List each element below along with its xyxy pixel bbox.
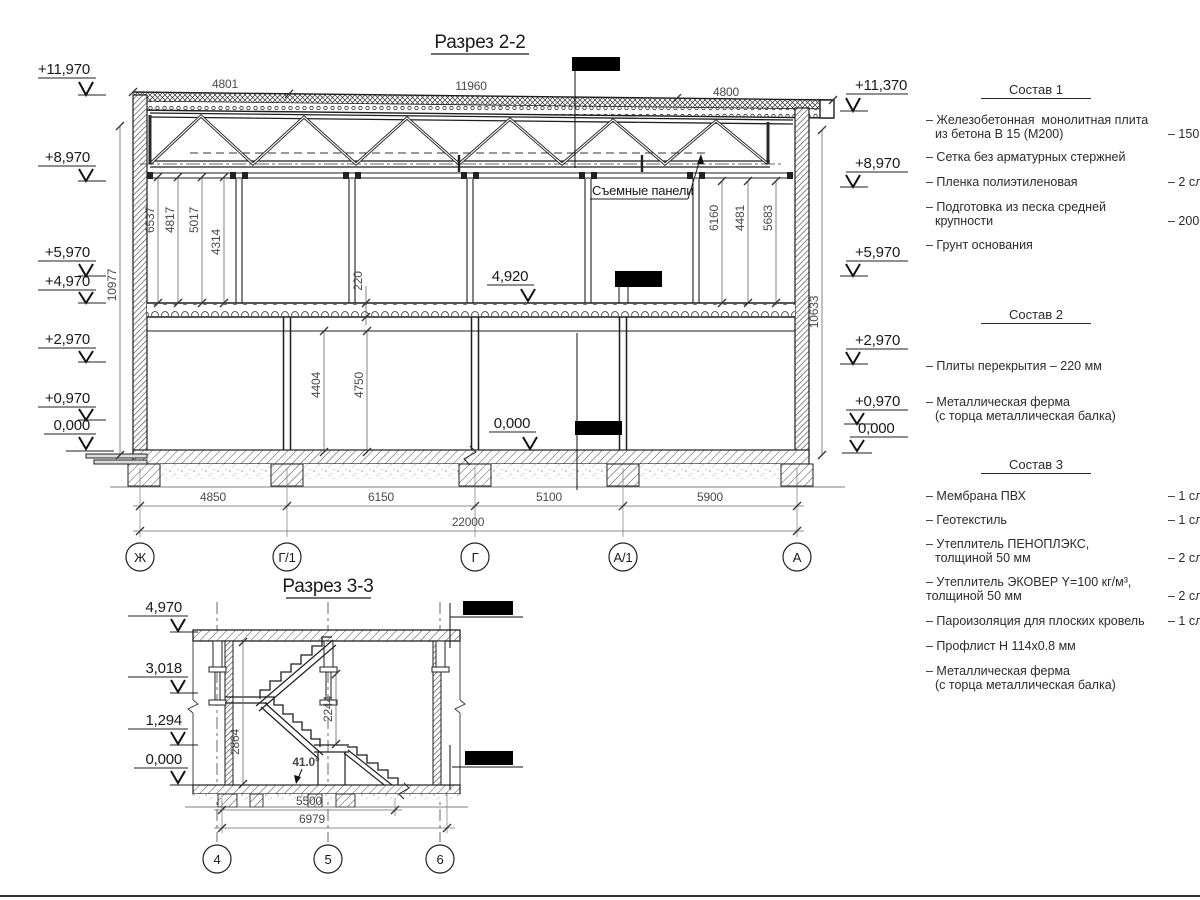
spec1-title: Состав 1 (981, 82, 1091, 99)
spec3-item2-l1: – Геотекстиль (926, 513, 1007, 527)
spec2-title: Состав 2 (981, 307, 1091, 324)
wall-right (795, 108, 809, 455)
spec1-item5-l1: – Грунт основания (926, 238, 1033, 252)
dim-6979: 6979 (299, 812, 325, 826)
dim-6537: 6537 (143, 207, 157, 233)
spec3-item5-qty: – 1 слой (1168, 614, 1200, 628)
elev-0970-l: +0,970 (45, 390, 90, 407)
dim-4800: 4800 (713, 85, 739, 99)
dim-5900: 5900 (697, 490, 723, 504)
spec1-item4-l2: крупности (926, 214, 1106, 228)
spec3-item1-l1: – Мембрана ПВХ (926, 489, 1026, 503)
axis-g1: Г/1 (278, 550, 295, 565)
spec1-item4: – Подготовка из песка средней крупности (926, 200, 1106, 228)
dim-5100: 5100 (536, 490, 562, 504)
upper-floor-glazing (147, 172, 793, 303)
spec2-item2: – Металлическая ферма (с торца металличе… (926, 395, 1116, 423)
dim-2244: 2244 (321, 696, 335, 722)
dim-4481: 4481 (733, 205, 747, 231)
dim-4750: 4750 (352, 372, 366, 398)
elevation-marks-left: +11,970 +8,970 +5,970 +4,970 +2,970 +0,9… (38, 61, 114, 451)
cut-marks-3-3 (450, 601, 523, 790)
elev-0970-r: +0,970 (855, 393, 900, 410)
axis-g: Г (472, 550, 479, 565)
axis-a1: А/1 (614, 550, 633, 565)
elev-0000-mid-text: 0,000 (494, 415, 531, 432)
spec3-item7: – Металлическая ферма (с торца металличе… (926, 664, 1116, 692)
section-3-3-title: Разрез 3-3 (282, 576, 373, 597)
elevation-marks-3-3: 4,970 3,018 1,294 0,000 (128, 599, 198, 785)
spec1-item2-l1: – Сетка без арматурных стержней (926, 150, 1125, 164)
elev-11970: +11,970 (38, 61, 90, 78)
axis-6: 6 (436, 852, 443, 867)
elev-0000-l: 0,000 (53, 417, 90, 434)
elevation-marks-right: +11,370 +8,970 +5,970 +2,970 +0,970 0,00… (840, 77, 908, 453)
axis-zh: Ж (134, 550, 146, 565)
spec1-item2: – Сетка без арматурных стержней (926, 150, 1125, 164)
dim-22000: 22000 (452, 515, 485, 529)
spec3-item4-l1: – Утеплитель ЭКОВЕР Y=100 кг/м³, (926, 575, 1131, 589)
dims-upper-left: 6537 4817 5017 4314 (143, 173, 228, 307)
elev-8970-l: +8,970 (45, 149, 90, 166)
elev-3018-s3: 3,018 (145, 660, 182, 677)
top-slab-3-3 (193, 630, 460, 641)
elev-5970-r: +5,970 (855, 244, 900, 261)
cut-flag-bottom (575, 421, 622, 435)
spec1-item5: – Грунт основания (926, 238, 1033, 252)
cut-flag-top (572, 57, 620, 71)
spec2-item1-l1: – Плиты перекрытия – 220 мм (926, 359, 1102, 373)
axis-a: А (793, 550, 802, 565)
spec3-item4: – Утеплитель ЭКОВЕР Y=100 кг/м³, толщино… (926, 575, 1131, 603)
spec3-item3-l1: – Утеплитель ПЕНОПЛЭКС, (926, 537, 1089, 551)
spec1-item3: – Пленка полиэтиленовая (926, 175, 1078, 189)
level-mark-0000-mid: 0,000 (489, 415, 537, 449)
spec1-item3-l1: – Пленка полиэтиленовая (926, 175, 1078, 189)
dim-220: 220 (351, 271, 365, 291)
dim-10977: 10977 (105, 268, 119, 301)
dim-10633: 10633 (807, 295, 821, 328)
spec3-item3-l2: толщиной 50 мм (926, 551, 1089, 565)
spec1-item1: – Железобетонная монолитная плита из бет… (926, 113, 1148, 141)
elev-0000-r: 0,000 (858, 420, 895, 437)
spec2-item1: – Плиты перекрытия – 220 мм (926, 359, 1102, 373)
spec3-item7-l1: – Металлическая ферма (926, 664, 1116, 678)
elev-11370: +11,370 (855, 77, 907, 94)
dim-6150: 6150 (368, 490, 394, 504)
spec3-item5: – Пароизоляция для плоских кровель (926, 614, 1145, 628)
spec3-item5-l1: – Пароизоляция для плоских кровель (926, 614, 1145, 628)
spec3-item6: – Профлист Н 114х0.8 мм (926, 639, 1076, 653)
spec3-item7-l2: (с торца металлическая балка) (926, 678, 1116, 692)
spec3-item6-l1: – Профлист Н 114х0.8 мм (926, 639, 1076, 653)
dim-6160: 6160 (707, 205, 721, 231)
cut-flag-33-bottom (465, 751, 513, 765)
section-2-2: Разрез 2-2 (38, 32, 908, 571)
spec3-item4-qty: – 2 слоя (1168, 589, 1200, 603)
dim-4850: 4850 (200, 490, 226, 504)
axis-5: 5 (324, 852, 331, 867)
elev-2970-r: +2,970 (855, 332, 900, 349)
spec1-item4-qty: – 200 мм (1168, 214, 1200, 228)
elev-4970-l: +4,970 (45, 273, 90, 290)
spec3-item1: – Мембрана ПВХ (926, 489, 1026, 503)
spec3-item4-l2: толщиной 50 мм (926, 589, 1131, 603)
elev-1294-s3: 1,294 (145, 712, 182, 729)
spec3-item3-qty: – 2 слоя (1168, 551, 1200, 565)
spec1-item1-l1: – Железобетонная монолитная плита (926, 113, 1148, 127)
drawing-sheet: Разрез 2-2 (0, 0, 1200, 900)
elev-4970-s3: 4,970 (145, 599, 182, 616)
dim-5500: 5500 (296, 794, 322, 808)
spec1-item4-l1: – Подготовка из песка средней (926, 200, 1106, 214)
dim-2864: 2864 (228, 729, 242, 755)
dims-lower: 220 4404 4750 (309, 271, 371, 456)
wall-left-3-3 (225, 641, 233, 785)
panels-label: Съемные панели (592, 183, 693, 198)
elev-8970-r: +8,970 (855, 155, 900, 172)
spec3-title: Состав 3 (981, 457, 1091, 474)
spec1-item1-qty: – 150 мм (1168, 127, 1200, 141)
spec3-item3: – Утеплитель ПЕНОПЛЭКС, толщиной 50 мм (926, 537, 1089, 565)
dim-5017: 5017 (187, 207, 201, 233)
dim-4817: 4817 (163, 207, 177, 233)
dim-4314: 4314 (209, 229, 223, 255)
ground-slab-3-3 (185, 783, 468, 807)
axis-4: 4 (213, 852, 220, 867)
wall-left (133, 95, 147, 455)
spec2-item2-l1: – Металлическая ферма (926, 395, 1116, 409)
elev-5970-l: +5,970 (45, 244, 90, 261)
cut-flag-33-top (463, 601, 513, 615)
dim-11960: 11960 (455, 79, 487, 93)
ground-slab (86, 446, 845, 487)
dim-4801: 4801 (212, 77, 238, 91)
dim-4404: 4404 (309, 372, 323, 398)
spec1-item3-qty: – 2 слоя (1168, 175, 1200, 189)
spec3-item1-qty: – 1 слой (1168, 489, 1200, 503)
axis-bubbles-3-3: 4 5 6 (203, 845, 454, 873)
elev-2970-l: +2,970 (45, 331, 90, 348)
spec3-item2: – Геотекстиль (926, 513, 1007, 527)
section-3-3: Разрез 3-3 (128, 576, 523, 873)
dims-upper-right: 6160 4481 5683 (707, 177, 780, 307)
roof-end-cap (820, 100, 834, 118)
section-2-2-title: Разрез 2-2 (434, 32, 525, 53)
spec3-item2-qty: – 1 слой (1168, 513, 1200, 527)
cut-flag-mid (615, 271, 662, 287)
roof-truss (140, 113, 793, 172)
level-mark-4920: 4,920 (487, 268, 535, 301)
spec2-item2-l2: (с торца металлическая балка) (926, 409, 1116, 423)
dim-angle: 41.0° (292, 755, 320, 769)
dim-5683: 5683 (761, 205, 775, 231)
elev-0000-s3: 0,000 (145, 751, 182, 768)
spec1-item1-l2: из бетона В 15 (М200) (926, 127, 1148, 141)
axis-bubbles-2-2: Ж Г/1 Г А/1 А (126, 543, 811, 571)
elev-4920-text: 4,920 (492, 268, 529, 285)
